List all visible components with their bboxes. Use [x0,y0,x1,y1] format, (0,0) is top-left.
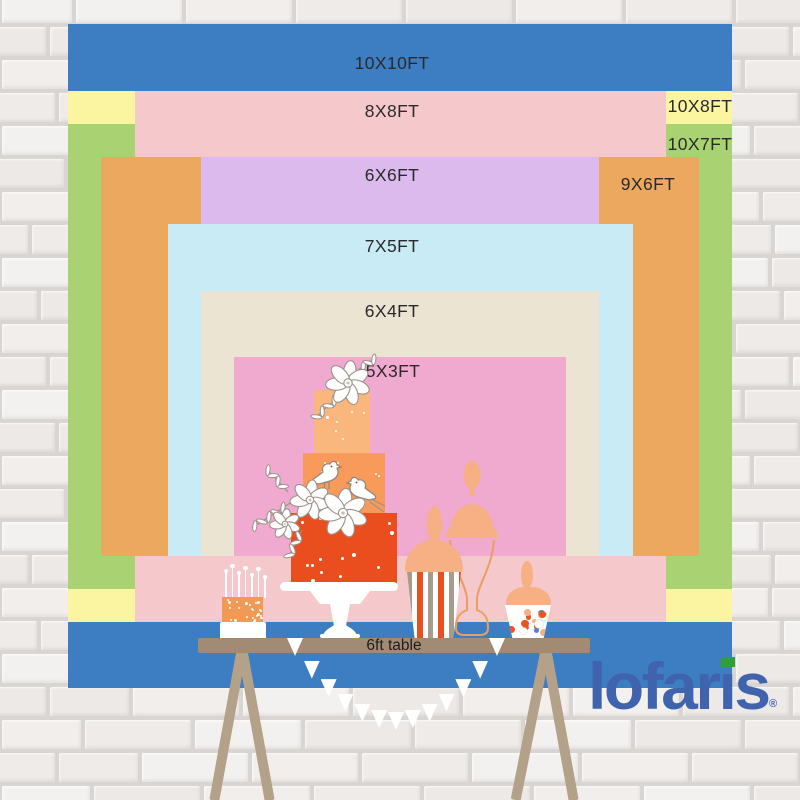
speckle [254,619,256,621]
brick [516,0,622,23]
cake-stand-icon [273,578,407,640]
brick [0,93,55,122]
brick [534,786,640,800]
speckle [252,609,254,611]
candle-tip [230,564,235,569]
speckle [236,601,238,603]
speckle [229,607,231,609]
brick [314,786,420,800]
speckle [238,607,240,609]
brick [772,588,800,617]
brick [0,423,55,452]
brick [0,621,37,650]
cake-flowers-and-birds-decor [230,350,410,565]
brick [793,27,800,56]
speckle [257,601,260,604]
brand-letter-i-green-dot: ı [719,650,735,722]
brick [133,687,239,716]
brick [243,687,349,716]
speckle [246,616,248,618]
size-label-9x6: 9X6FT [621,174,676,195]
candle-stick [251,576,253,598]
brick [0,27,46,56]
candy-dot [535,620,543,628]
backdrop-size-comparison-image: 10X10FT 10X8FT 10X7FT 8X8FT 9X6FT 6X6FT … [0,0,800,800]
brick [94,786,200,800]
brick [692,753,798,782]
size-label-10x10: 10X10FT [355,53,430,74]
brand-logo-text: lofarıs [588,650,800,722]
brick [406,0,512,23]
brick [784,291,800,320]
candle-stick [232,567,234,598]
candle-tip [243,566,248,571]
speckle [257,613,259,615]
brick [754,126,800,155]
popcorn-jar-finial-icon [427,506,442,542]
candle-stick [245,569,247,598]
candy-dot [539,611,546,618]
size-label-10x8: 10X8FT [668,96,733,117]
brick [763,192,800,221]
size-label-6x6: 6X6FT [365,165,420,186]
brick [59,753,138,782]
candy-dot [520,628,527,635]
brick [0,753,55,782]
speckle [249,604,251,606]
speckle [377,566,380,569]
candle-stick [225,572,227,598]
brick [2,654,72,683]
brick [644,786,750,800]
brick [0,225,28,254]
brick [0,687,46,716]
size-label-10x7: 10X7FT [668,134,733,155]
brick [582,753,688,782]
small-cake-icon [222,597,263,622]
brick [2,324,72,353]
birthday-candles-icon [222,565,266,598]
brick [736,0,800,23]
white-flowers-icon [269,360,371,540]
speckle [320,571,323,574]
speckle [252,617,254,619]
brick [775,225,800,254]
speckle [251,608,253,610]
candy-dot [534,628,540,634]
brick [736,324,800,353]
brick [85,720,191,749]
candle-tip [263,575,268,580]
candle-stick [238,574,240,598]
brick [763,522,800,551]
brick [415,720,521,749]
candy-dot [524,609,531,616]
speckle [260,610,262,612]
brick [745,60,800,89]
brick [76,0,182,23]
candy-jar-lid-icon [506,587,551,606]
size-label-7x5: 7X5FT [365,236,420,257]
speckle [245,603,247,605]
brick [775,555,800,584]
brick [772,258,800,287]
candle-tip [256,567,261,572]
brick [2,786,90,800]
brick [142,753,248,782]
brick [2,720,81,749]
brick [296,0,402,23]
brick [0,555,28,584]
brick [0,357,46,386]
brick [362,753,468,782]
brick [195,720,301,749]
candle-stick [258,570,260,598]
brick [754,786,800,800]
brick [0,159,64,188]
brick [0,489,64,518]
brick [793,357,800,386]
brick [50,687,129,716]
table-size-label: 6ft table [366,638,421,653]
brick [186,0,292,23]
brick [2,0,72,23]
brick [754,456,800,485]
candy-jar-finial-icon [521,561,533,589]
candy-dot [521,620,529,628]
popcorn-jar-icon [407,572,461,638]
speckle [228,601,231,604]
registered-trademark-symbol: ® [769,698,777,710]
brick [784,621,800,650]
brick [626,0,732,23]
brick [745,390,800,419]
brand-logo: lofarıs ® [588,650,800,725]
candle-stick [264,578,266,598]
candle-tip [250,573,255,578]
candle-tip [237,571,242,576]
brick [0,291,37,320]
size-label-6x4: 6X4FT [365,301,420,322]
table: 6ft table [198,638,590,653]
size-label-8x8: 8X8FT [365,101,420,122]
candy-jar-icon [505,605,551,638]
candle-tip [224,569,229,574]
